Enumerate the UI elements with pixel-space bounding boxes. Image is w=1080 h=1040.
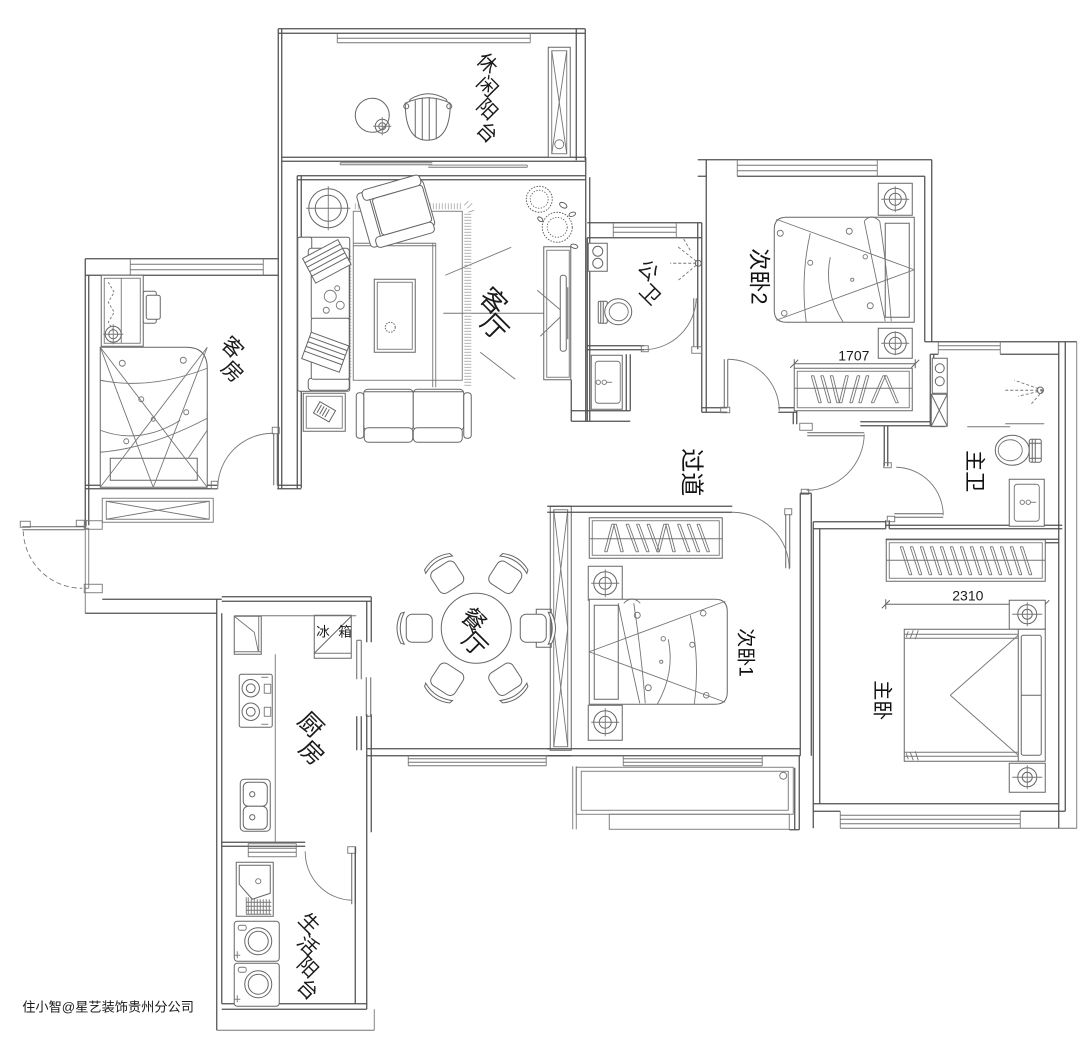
svg-text:2310: 2310	[952, 587, 983, 603]
svg-text:次卧2: 次卧2	[746, 248, 771, 304]
svg-text:次卧1: 次卧1	[734, 628, 756, 677]
svg-text:1707: 1707	[838, 347, 869, 363]
svg-text:住小智@星艺装饰贵州分公司: 住小智@星艺装饰贵州分公司	[22, 999, 194, 1014]
svg-text:主卧: 主卧	[870, 680, 893, 720]
svg-text:冰: 冰	[316, 624, 330, 639]
svg-text:过道: 过道	[677, 448, 704, 496]
svg-text:箱: 箱	[338, 624, 352, 639]
svg-text:主卫: 主卫	[962, 450, 985, 492]
